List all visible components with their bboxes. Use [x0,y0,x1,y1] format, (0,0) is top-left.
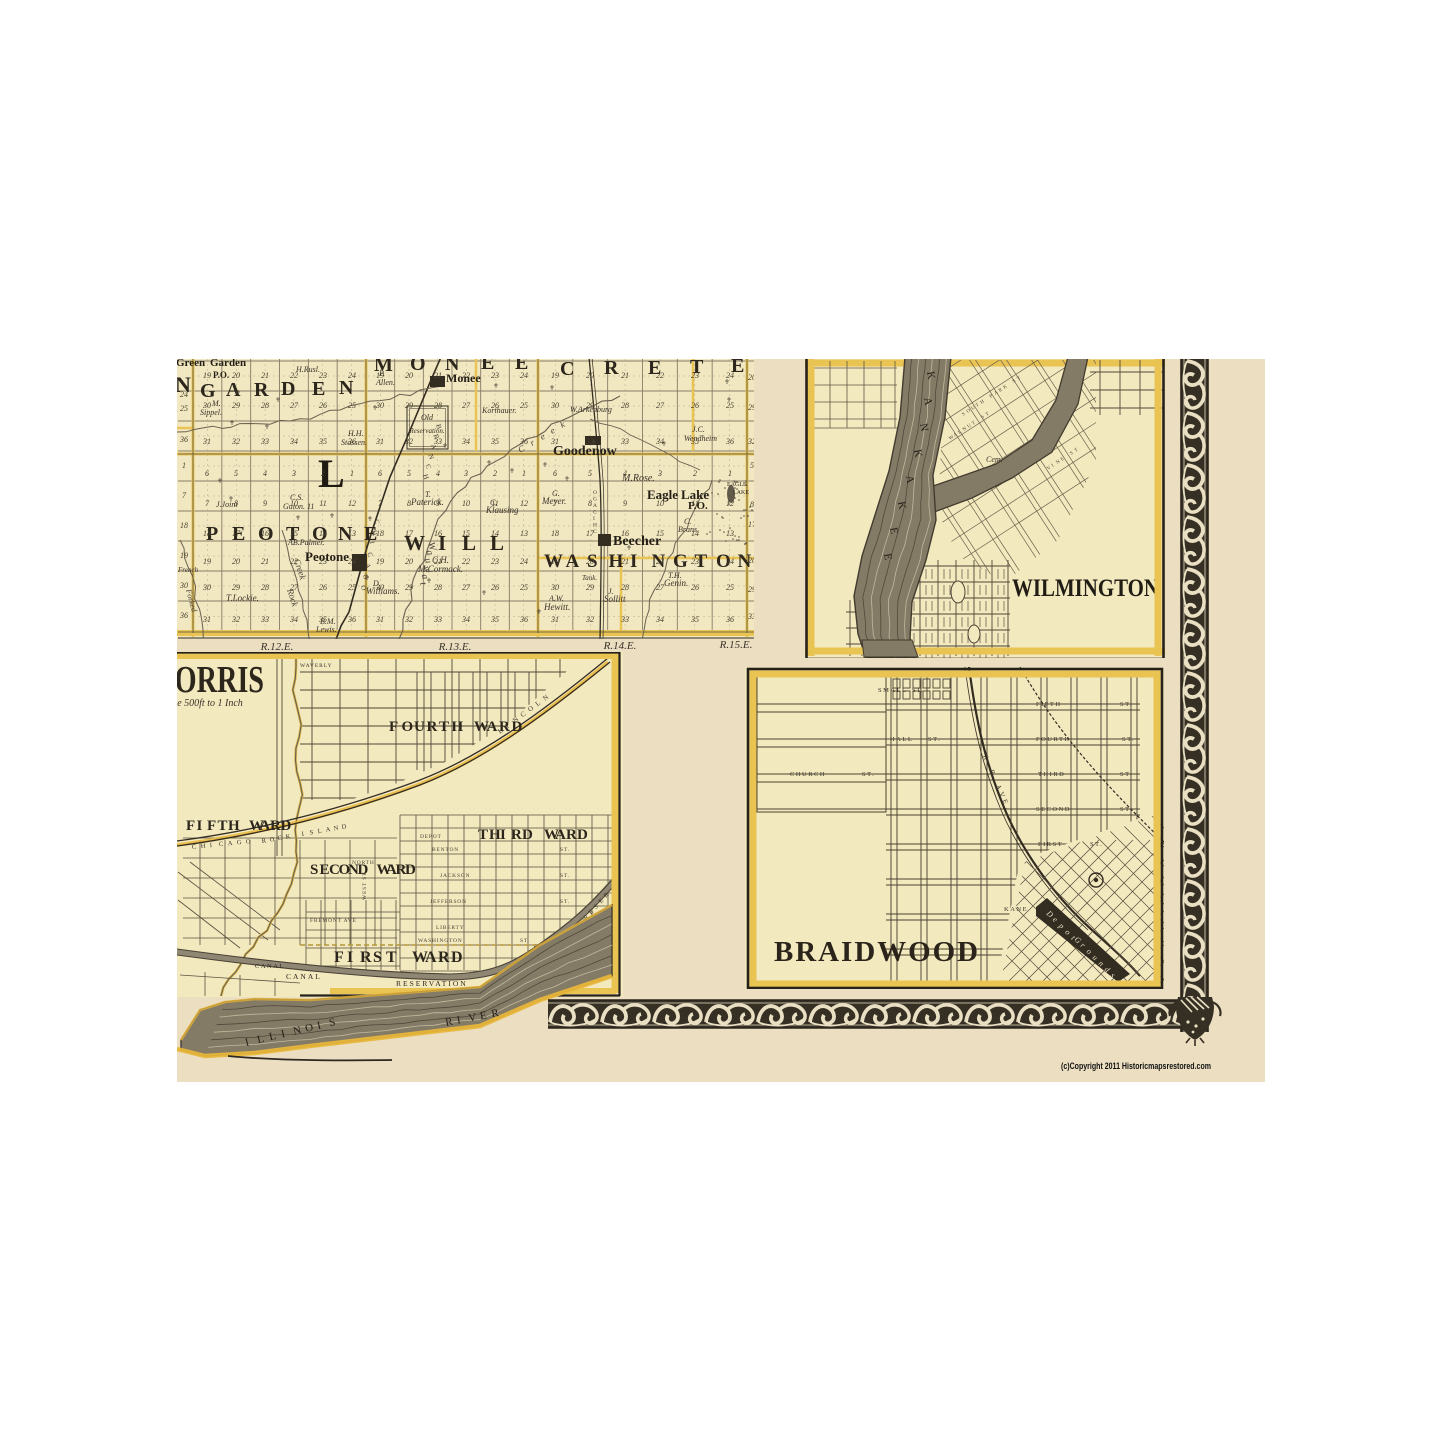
svg-text:M.: M. [211,399,221,408]
svg-text:E: E [320,862,330,878]
svg-text:31: 31 [202,437,211,446]
svg-text:22: 22 [462,371,470,380]
svg-text:25: 25 [348,401,356,410]
svg-text:4: 4 [623,469,627,478]
svg-text:16: 16 [621,529,629,538]
svg-text:D: D [281,378,295,400]
svg-text:French: French [177,566,198,574]
svg-text:A: A [226,379,241,401]
svg-text:I: I [347,949,353,966]
svg-text:O: O [402,719,414,735]
svg-text:34: 34 [461,437,470,446]
svg-text:6: 6 [205,469,209,478]
svg-text:WILMINGTON: WILMINGTON [1012,575,1159,602]
svg-text:33: 33 [260,615,269,624]
svg-text:18: 18 [203,529,211,538]
svg-text:R: R [566,827,577,843]
svg-text:R: R [360,949,372,966]
svg-text:30: 30 [202,401,211,410]
svg-text:30: 30 [550,583,559,592]
svg-text:5: 5 [750,461,754,470]
svg-text:U: U [414,719,425,735]
svg-text:28: 28 [434,583,442,592]
svg-text:29: 29 [586,583,594,592]
svg-text:29: 29 [232,583,240,592]
svg-text:14: 14 [691,529,699,538]
svg-text:9: 9 [263,499,267,508]
svg-text:HALL: HALL [890,736,913,743]
svg-text:ST.: ST. [560,899,570,905]
svg-text:R.14.E.: R.14.E. [603,640,637,652]
svg-text:SECOND: SECOND [1036,806,1071,813]
svg-text:5: 5 [407,469,411,478]
svg-text:Tank.: Tank. [582,574,597,582]
svg-text:22: 22 [290,557,298,566]
svg-text:23: 23 [491,371,499,380]
svg-text:9: 9 [623,499,627,508]
svg-text:R: R [511,827,522,843]
svg-text:28: 28 [261,401,269,410]
svg-text:30: 30 [375,401,384,410]
svg-text:3: 3 [657,469,662,478]
svg-text:KANE: KANE [1004,906,1028,913]
svg-text:S: S [373,949,382,966]
svg-text:28: 28 [434,401,442,410]
svg-text:16: 16 [434,529,442,538]
svg-text:33: 33 [260,437,269,446]
svg-text:12: 12 [726,499,734,508]
svg-text:31: 31 [375,437,384,446]
svg-text:C: C [218,841,223,848]
svg-text:20: 20 [586,557,594,566]
svg-text:30: 30 [550,401,559,410]
svg-text:21: 21 [261,557,269,566]
svg-text:19: 19 [180,551,188,560]
svg-text:6: 6 [553,469,557,478]
svg-text:35: 35 [318,437,327,446]
svg-text:32: 32 [585,615,594,624]
svg-text:1: 1 [522,469,526,478]
svg-text:21: 21 [261,371,269,380]
svg-text:21: 21 [621,557,629,566]
svg-text:I: I [630,551,637,572]
svg-text:ST.: ST. [862,771,875,778]
svg-text:AB.Palmer.: AB.Palmer. [287,538,324,547]
svg-text:A: A [260,818,271,834]
svg-text:CANAL: CANAL [255,963,285,970]
svg-text:ST.: ST. [1040,906,1053,913]
svg-text:12: 12 [520,499,528,508]
svg-text:32: 32 [404,437,413,446]
svg-text:13: 13 [348,529,356,538]
svg-text:20: 20 [232,557,240,566]
svg-text:4: 4 [263,469,267,478]
svg-text:CANAL: CANAL [286,972,322,981]
svg-text:(c)Copyright 2011 Historicmaps: (c)Copyright 2011 Historicmapsrestored.c… [1061,1061,1211,1072]
svg-text:Hewitt.: Hewitt. [543,602,570,612]
svg-text:ST.: ST. [1090,841,1103,848]
svg-text:20: 20 [405,371,413,380]
svg-text:JEFFERSON: JEFFERSON [430,899,467,905]
svg-text:14: 14 [319,529,327,538]
svg-text:15: 15 [462,529,470,538]
svg-text:26: 26 [691,583,699,592]
svg-text:A: A [555,827,566,843]
svg-text:WASHINGTON: WASHINGTON [418,938,463,944]
svg-text:30: 30 [202,583,211,592]
svg-text:27: 27 [462,583,471,592]
svg-text:23: 23 [691,371,699,380]
svg-text:24: 24 [348,371,356,380]
svg-text:2: 2 [693,469,697,478]
svg-text:P.O.: P.O. [213,370,229,380]
svg-text:31: 31 [550,437,559,446]
svg-text:11: 11 [319,499,326,508]
svg-text:27: 27 [656,583,665,592]
svg-text:33: 33 [620,615,629,624]
svg-text:28: 28 [621,583,629,592]
svg-text:8: 8 [588,499,592,508]
svg-text:Sollitt: Sollitt [604,594,626,604]
svg-text:11: 11 [691,499,698,508]
svg-text:35: 35 [490,437,499,446]
svg-text:O: O [593,490,597,496]
svg-text:R: R [499,719,510,735]
svg-text:Cem.: Cem. [986,455,1003,464]
svg-text:22: 22 [290,371,298,380]
svg-text:D: D [522,827,533,843]
svg-text:20: 20 [232,371,240,380]
svg-text:22: 22 [656,557,664,566]
svg-text:21: 21 [621,371,629,380]
svg-text:29: 29 [405,401,413,410]
svg-text:29: 29 [405,583,413,592]
svg-text:T.Lockie.: T.Lockie. [226,593,259,603]
svg-text:35: 35 [690,615,699,624]
svg-text:R: R [604,357,619,379]
svg-text:S: S [310,862,318,878]
svg-text:29: 29 [232,401,240,410]
svg-text:24: 24 [348,557,356,566]
svg-text:23: 23 [319,371,327,380]
svg-text:17: 17 [405,529,414,538]
svg-text:30: 30 [375,583,384,592]
svg-text:I: I [593,516,595,522]
svg-text:ST.: ST. [1120,771,1133,778]
svg-text:26: 26 [319,401,327,410]
svg-text:ST.: ST. [520,938,530,944]
svg-text:3: 3 [291,469,296,478]
svg-text:21: 21 [434,557,442,566]
svg-text:10: 10 [462,499,470,508]
svg-text:ST.: ST. [912,687,924,694]
svg-text:3: 3 [463,469,468,478]
svg-text:25: 25 [348,583,356,592]
svg-text:ST.: ST. [1120,701,1133,708]
svg-text:19: 19 [203,371,211,380]
svg-text:R: R [254,379,269,401]
svg-text:19: 19 [376,371,384,380]
svg-text:SMALL: SMALL [878,687,908,694]
svg-text:R.15.E.: R.15.E. [719,639,753,651]
svg-text:A: A [487,719,498,735]
svg-text:25: 25 [180,404,188,413]
svg-text:20: 20 [586,371,594,380]
svg-text:36: 36 [179,611,188,620]
svg-text:LAKE: LAKE [733,490,749,496]
svg-text:34: 34 [461,615,470,624]
svg-text:36: 36 [347,615,356,624]
svg-text:10: 10 [290,499,298,508]
svg-text:32: 32 [585,437,594,446]
svg-text:ST.: ST. [928,736,941,743]
svg-text:34: 34 [289,437,298,446]
svg-text:15: 15 [656,529,664,538]
svg-text:9: 9 [436,499,440,508]
svg-text:H: H [593,523,597,529]
svg-text:25: 25 [520,583,528,592]
svg-text:T: T [218,818,228,834]
svg-text:T: T [478,827,488,843]
svg-text:19: 19 [551,557,559,566]
svg-text:F: F [207,818,216,834]
svg-text:36: 36 [347,437,356,446]
svg-text:28: 28 [261,583,269,592]
svg-text:ST.: ST. [560,847,570,853]
svg-text:Old: Old [421,413,434,422]
svg-text:D: D [512,719,523,735]
svg-text:17: 17 [232,529,241,538]
svg-text:36: 36 [725,437,734,446]
svg-text:I: I [197,818,203,834]
svg-text:1: 1 [350,469,354,478]
svg-text:27: 27 [462,401,471,410]
svg-text:R: R [427,719,438,735]
svg-text:F: F [186,818,195,834]
svg-text:1: 1 [728,469,732,478]
svg-text:T: T [386,949,397,966]
svg-text:E: E [312,378,325,400]
svg-text:24: 24 [180,390,188,399]
svg-text:D: D [577,827,588,843]
svg-text:21: 21 [434,371,442,380]
svg-text:34: 34 [655,437,664,446]
svg-text:25: 25 [726,583,734,592]
svg-text:DEPOT: DEPOT [420,834,442,840]
svg-text:ST.: ST. [560,873,570,879]
svg-text:J.C.: J.C. [692,425,705,434]
svg-text:32: 32 [231,437,240,446]
svg-text:12: 12 [348,499,356,508]
svg-text:26: 26 [491,583,499,592]
svg-text:24: 24 [726,557,734,566]
svg-text:19: 19 [376,557,384,566]
svg-text:26: 26 [691,401,699,410]
svg-text:18: 18 [376,529,384,538]
svg-text:27: 27 [290,401,299,410]
svg-text:35: 35 [690,437,699,446]
svg-text:2: 2 [321,469,325,478]
svg-text:27: 27 [656,401,665,410]
svg-text:Wendheim: Wendheim [684,434,717,443]
svg-text:4: 4 [436,469,440,478]
svg-text:33: 33 [433,615,442,624]
svg-text:30: 30 [179,581,188,590]
svg-text:H: H [452,719,464,735]
svg-text:R.12.E.: R.12.E. [260,641,294,653]
svg-text:D: D [405,862,416,878]
svg-text:H.Rusl.: H.Rusl. [295,365,320,374]
svg-text:36: 36 [519,437,528,446]
svg-text:Lewis.: Lewis. [315,625,337,634]
svg-text:20: 20 [405,557,413,566]
svg-text:F: F [389,719,398,735]
svg-text:26: 26 [319,583,327,592]
svg-text:17: 17 [586,529,595,538]
svg-text:T: T [439,719,449,735]
svg-text:16: 16 [261,529,269,538]
svg-text:D: D [451,949,463,966]
svg-text:A: A [425,949,437,966]
svg-text:D: D [358,862,369,878]
svg-text:R: R [438,949,450,966]
svg-text:R.13.E.: R.13.E. [438,641,472,653]
svg-text:EAGLE: EAGLE [727,482,747,488]
svg-text:ST.: ST. [1120,806,1133,813]
svg-text:36: 36 [725,615,734,624]
svg-text:BENTON: BENTON [432,847,459,853]
svg-text:N: N [339,377,354,399]
svg-text:22: 22 [656,371,664,380]
svg-text:Guion. 11: Guion. 11 [283,502,314,511]
svg-text:13: 13 [520,529,528,538]
svg-text:8: 8 [750,500,754,509]
svg-text:5: 5 [234,469,238,478]
svg-text:8: 8 [407,499,411,508]
svg-text:H: H [228,818,240,834]
svg-text:D: D [281,818,292,834]
svg-text:1: 1 [182,461,186,470]
svg-text:32: 32 [404,615,413,624]
svg-text:G: G [593,497,597,503]
svg-text:F: F [334,949,344,966]
svg-text:23: 23 [319,557,327,566]
svg-text:31: 31 [375,615,384,624]
svg-text:24: 24 [726,371,734,380]
svg-text:25: 25 [726,401,734,410]
svg-text:10: 10 [656,499,664,508]
svg-text:36: 36 [179,435,188,444]
svg-text:19: 19 [203,557,211,566]
svg-text:C: C [191,844,196,851]
svg-text:34: 34 [655,615,664,624]
svg-text:Goodenow: Goodenow [553,444,618,459]
svg-text:LIBERTY: LIBERTY [436,925,465,931]
svg-text:RESERVATION: RESERVATION [396,979,468,988]
svg-text:Peotone: Peotone [305,549,349,564]
svg-text:FREMONT AVE: FREMONT AVE [310,918,357,924]
svg-text:19: 19 [551,371,559,380]
svg-text:23: 23 [691,557,699,566]
svg-text:22: 22 [462,557,470,566]
svg-text:FIRST: FIRST [1038,841,1063,848]
svg-text:5: 5 [588,469,592,478]
svg-text:26: 26 [491,401,499,410]
svg-text:31: 31 [550,615,559,624]
svg-text:6: 6 [378,469,382,478]
svg-text:32: 32 [231,615,240,624]
svg-text:25: 25 [520,401,528,410]
svg-text:35: 35 [318,615,327,624]
svg-text:C: C [593,510,597,516]
svg-text:A: A [593,503,597,509]
svg-text:28: 28 [621,401,629,410]
svg-text:JACKSON: JACKSON [440,873,470,879]
svg-text:15: 15 [290,529,298,538]
svg-text:FOURTH: FOURTH [1036,736,1071,743]
svg-text:13: 13 [726,529,734,538]
svg-text:WAVERLY: WAVERLY [300,663,333,669]
svg-text:C: C [560,358,574,380]
svg-text:A: A [566,551,580,572]
svg-text:8: 8 [234,499,238,508]
svg-text:24: 24 [520,371,528,380]
svg-text:11: 11 [491,499,498,508]
svg-text:33: 33 [620,437,629,446]
svg-text:G: G [673,551,688,572]
svg-text:24: 24 [520,557,528,566]
svg-text:29: 29 [586,401,594,410]
svg-text:FIFTH: FIFTH [1036,701,1062,708]
svg-text:THIRD: THIRD [1038,771,1065,778]
svg-text:34: 34 [289,615,298,624]
svg-text:R: R [270,818,281,834]
svg-text:23: 23 [491,557,499,566]
svg-text:27: 27 [290,583,299,592]
svg-text:14: 14 [491,529,499,538]
svg-text:35: 35 [490,615,499,624]
svg-text:BRAIDWOOD: BRAIDWOOD [774,936,980,968]
svg-text:31: 31 [202,615,211,624]
svg-text:I: I [500,827,506,843]
svg-text:CHURCH: CHURCH [790,771,826,778]
svg-text:36: 36 [519,615,528,624]
svg-text:ST.: ST. [1122,736,1135,743]
svg-text:18: 18 [180,521,188,530]
svg-text:2: 2 [493,469,497,478]
svg-text:18: 18 [551,529,559,538]
svg-text:33: 33 [433,437,442,446]
svg-text:Genin.: Genin. [664,578,688,588]
